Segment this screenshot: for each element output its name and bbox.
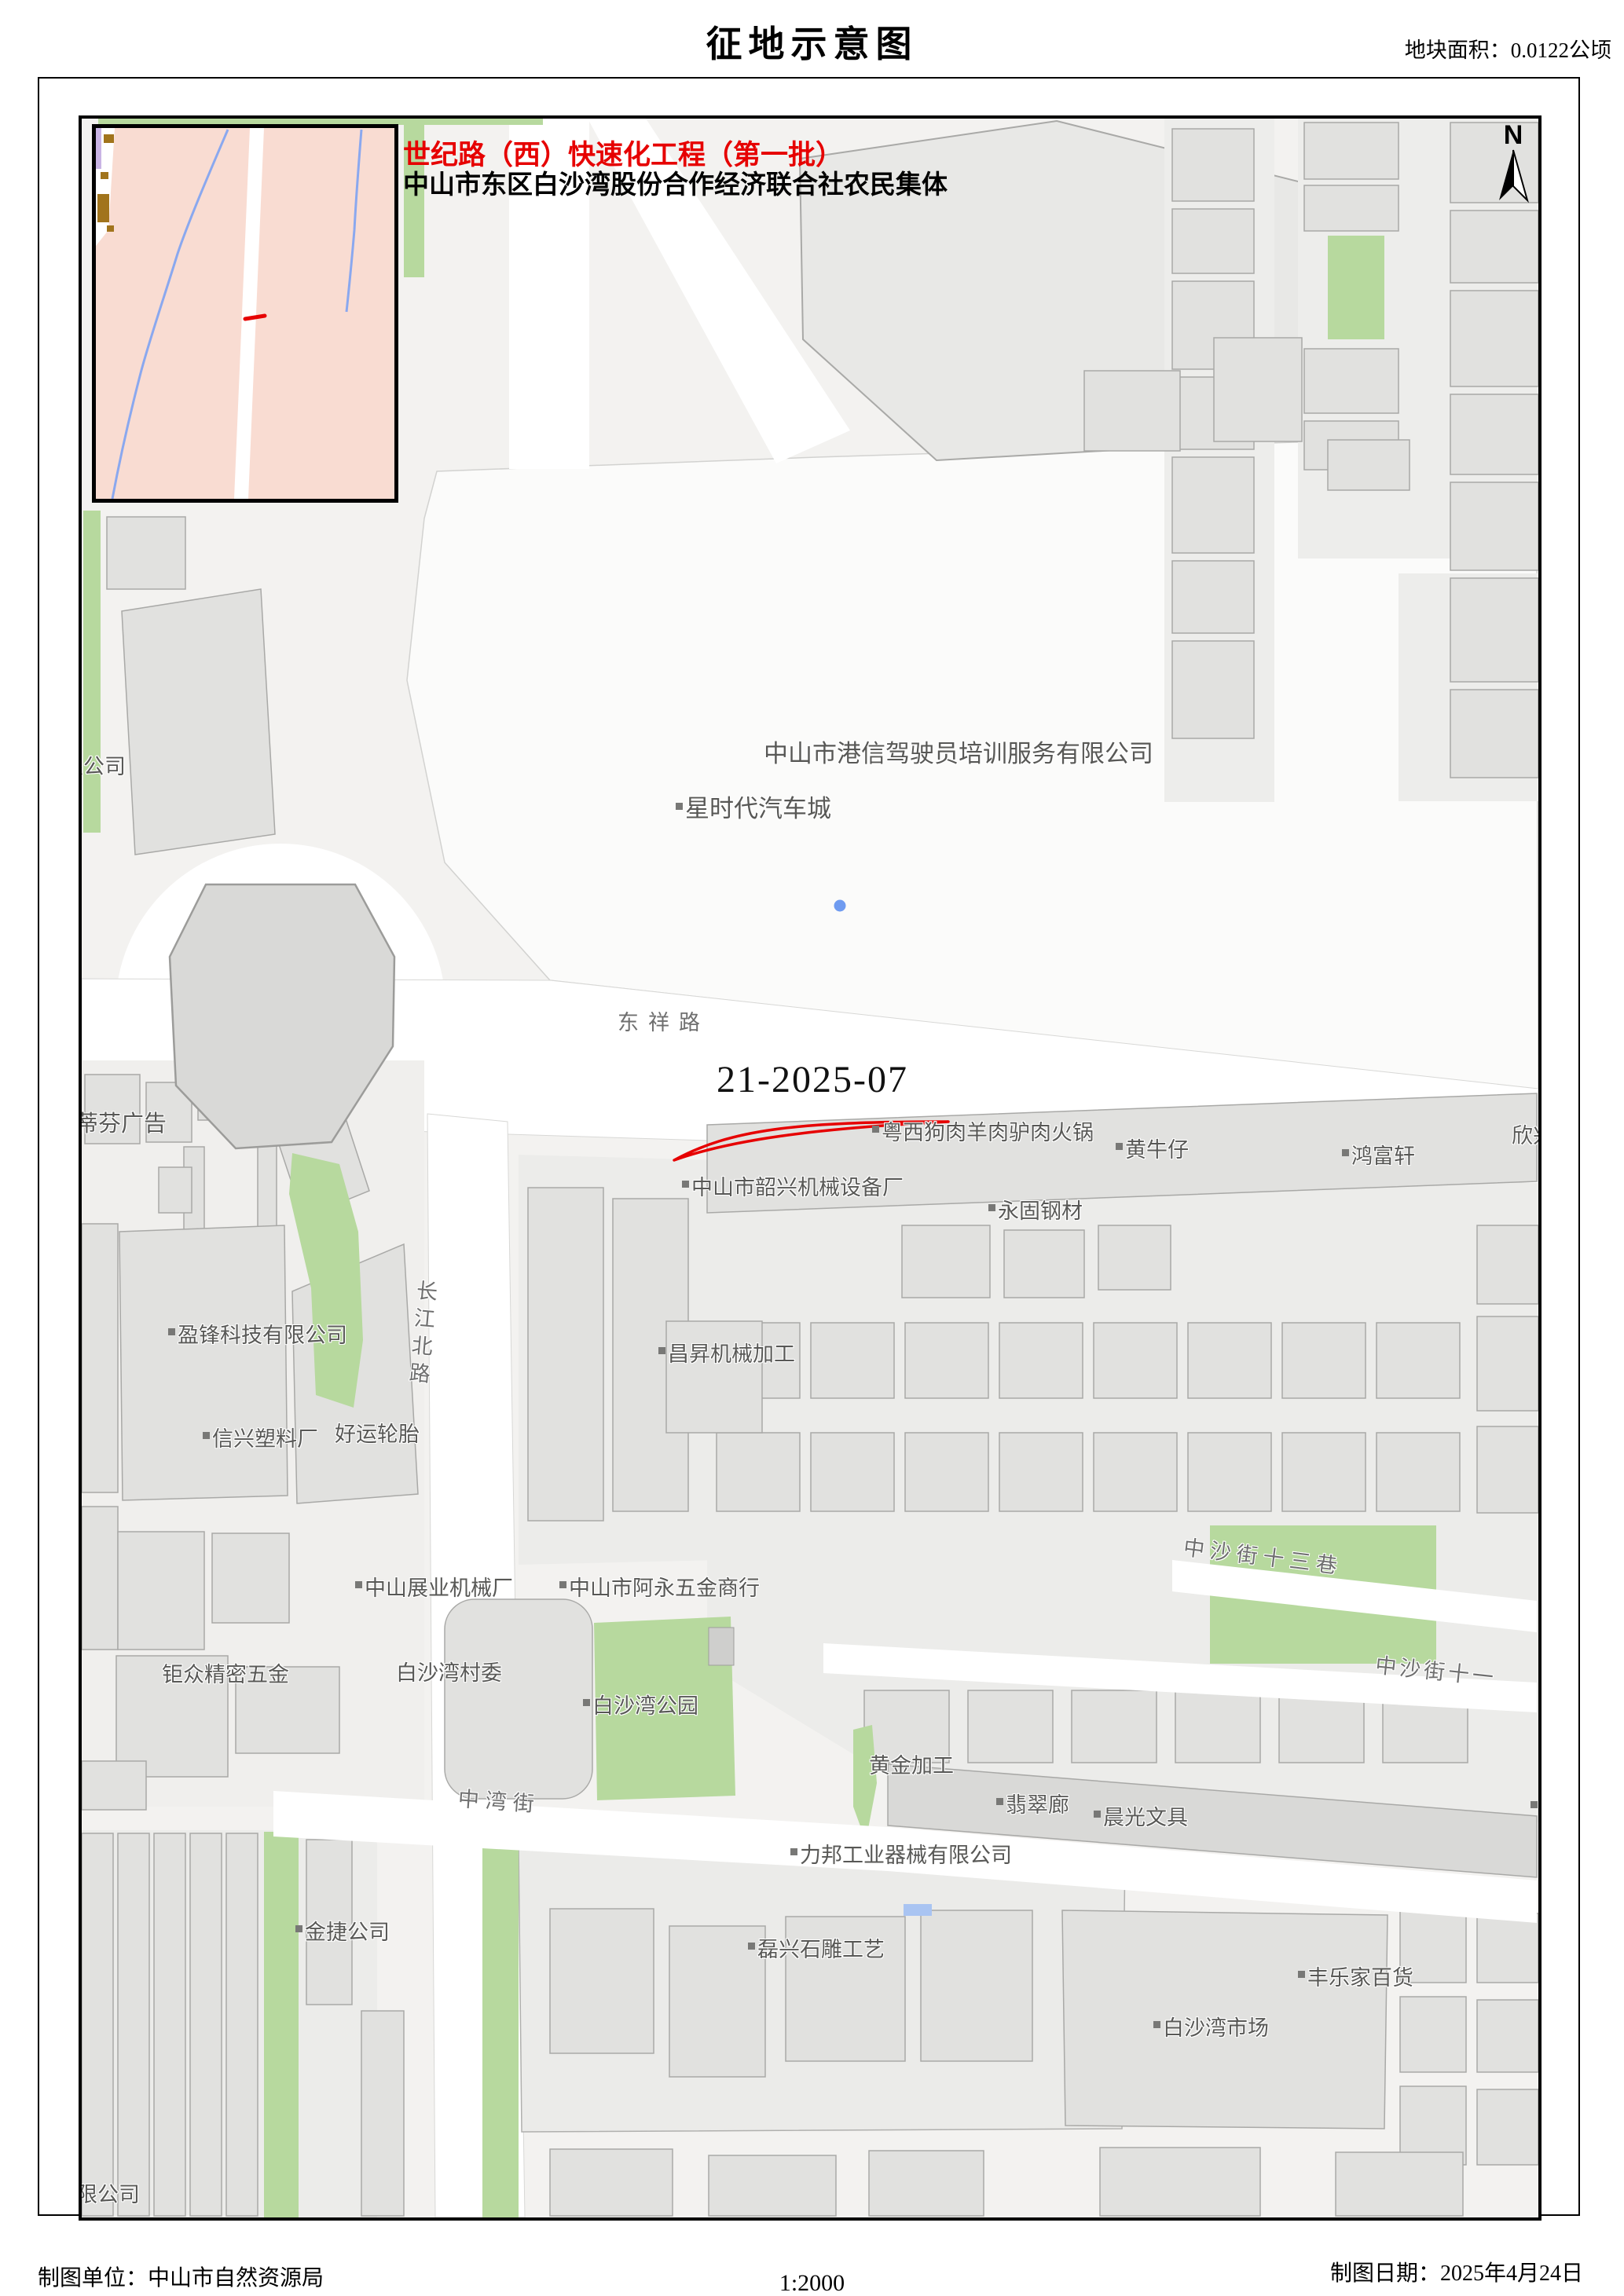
map-label-text: 中沙街十三巷 [1182, 1536, 1344, 1579]
map-date: 制图日期：2025年4月24日 [1330, 2256, 1583, 2287]
map-label: 有限公司 [79, 2184, 140, 2206]
map-label: 中山展业机械厂 [355, 1577, 513, 1599]
poi-marker-icon [168, 1328, 175, 1335]
map-label-text: 昌昇机械加工 [668, 1342, 795, 1366]
road-label: 中沙街十一 [1374, 1654, 1498, 1689]
map-label: 星时代汽车城 [676, 796, 831, 822]
poi-marker-icon [1342, 1149, 1349, 1156]
land-acquisition-map-page: 征地示意图 地块面积：0.0122公顷 [0, 0, 1624, 2296]
road-label: 东祥路 [618, 1012, 709, 1034]
map-label: 白沙湾市场 [1153, 2017, 1269, 2039]
map-label-text: 中山市港信驾驶员培训服务有限公司 [764, 740, 1153, 767]
poi-marker-icon [295, 1925, 302, 1932]
road-label: 长江北路 [405, 1279, 437, 1390]
map-label: 白沙湾村委 [396, 1662, 502, 1684]
map-label-text: 信兴塑料厂 [212, 1427, 318, 1451]
map-frame: 有限公司中山市港信驾驶员培训服务有限公司星时代汽车城东祥路蒂芬广告粤西狗肉羊肉驴… [79, 115, 1542, 2221]
map-label-text: 有限公司 [79, 2183, 140, 2206]
map-label: 中山市韶兴机械设备厂 [682, 1177, 904, 1199]
map-label-text: 鸿富轩 [1351, 1144, 1415, 1168]
map-label-text: 晨光文具 [1103, 1806, 1188, 1829]
parcel-id-label: 21-2025-07 [717, 1058, 908, 1101]
map-label: 好运轮胎 [335, 1423, 420, 1445]
map-label: 粤西狗肉羊肉驴肉火锅 [872, 1122, 1094, 1144]
map-label-text: 星时代汽车城 [685, 795, 831, 822]
inset-canvas [96, 128, 394, 499]
map-label: 信兴塑料厂 [203, 1428, 318, 1450]
poi-marker-icon [1116, 1143, 1123, 1150]
map-label-text: 粤西狗肉羊肉驴肉火锅 [882, 1121, 1094, 1144]
poi-marker-icon [1153, 2021, 1160, 2028]
map-label-text: 蒂芬广告 [79, 1111, 167, 1137]
map-label: 白沙湾公园 [583, 1695, 698, 1717]
page-title: 征地示意图 [0, 16, 1624, 68]
map-label: 金捷公司 [295, 1921, 390, 1943]
map-label: 永固钢材 [988, 1200, 1083, 1222]
map-label-text: 盈锋科技有限公司 [178, 1324, 347, 1347]
map-label-text: 翡翠廊 [1006, 1793, 1069, 1817]
map-label-text: 中山展业机械厂 [365, 1576, 513, 1600]
map-label: 中山市港信驾驶员培训服务有限公司 [764, 742, 1153, 767]
north-label: N [1491, 122, 1535, 148]
map-label-text: 钜众精密五金 [162, 1663, 289, 1686]
poi-marker-icon [996, 1798, 1003, 1805]
map-label: 鸿富轩 [1342, 1145, 1415, 1167]
map-label: 晨光文具 [1094, 1807, 1188, 1829]
map-label: 黄金加工 [869, 1755, 954, 1777]
poi-marker-icon [790, 1848, 797, 1855]
map-label: 中山市阿永五金商行 [559, 1577, 760, 1599]
map-label: 力邦工业器械有限公司 [790, 1844, 1012, 1866]
map-label-text: 有限公司 [79, 755, 126, 778]
map-label-text: 好运轮胎 [335, 1423, 420, 1446]
road-label: 中沙街十三巷 [1182, 1536, 1344, 1578]
north-arrow: N [1491, 122, 1535, 207]
map-label: 钜众精密五金 [162, 1664, 289, 1686]
poi-marker-icon [748, 1943, 755, 1950]
map-label: 翡翠廊 [996, 1794, 1069, 1816]
poi-marker-icon [583, 1699, 590, 1706]
map-label: 欣兴 [1512, 1125, 1542, 1147]
poi-marker-icon [676, 803, 683, 810]
map-label-text: 黄 [1540, 1796, 1542, 1820]
poi-marker-icon [1094, 1811, 1101, 1818]
plot-area-note: 地块面积：0.0122公顷 [1405, 33, 1611, 64]
map-label: 有限公司 [79, 756, 126, 778]
map-label-text: 白沙湾公园 [592, 1694, 698, 1718]
map-label-text: 中湾街 [457, 1787, 541, 1816]
map-label: 黄 [1531, 1797, 1542, 1819]
map-label-text: 丰乐家百货 [1307, 1966, 1413, 1990]
map-label-text: 磊兴石雕工艺 [757, 1938, 885, 1961]
map-label-text: 永固钢材 [998, 1199, 1083, 1223]
poi-marker-icon [355, 1581, 362, 1588]
map-label-text: 欣兴 [1512, 1124, 1542, 1148]
map-label-text: 中山市阿永五金商行 [569, 1576, 760, 1600]
map-label-text: 中山市韶兴机械设备厂 [691, 1176, 904, 1199]
poi-marker-icon [658, 1347, 665, 1354]
map-label-text: 黄金加工 [869, 1754, 954, 1778]
map-label: 黄牛仔 [1116, 1139, 1189, 1161]
map-label: 蒂芬广告 [79, 1112, 167, 1136]
location-inset-map [92, 124, 398, 503]
map-label: 丰乐家百货 [1298, 1967, 1413, 1989]
poi-marker-icon [1531, 1801, 1538, 1808]
map-label-text: 力邦工业器械有限公司 [800, 1844, 1012, 1867]
map-label: 磊兴石雕工艺 [748, 1939, 885, 1961]
map-label-text: 白沙湾市场 [1163, 2016, 1269, 2040]
map-label-text: 长江北路 [405, 1279, 438, 1390]
poi-marker-icon [988, 1204, 995, 1211]
map-label-text: 黄牛仔 [1125, 1138, 1189, 1162]
poi-marker-icon [1298, 1971, 1305, 1978]
land-owner-collective: 中山市东区白沙湾股份合作经济联合社农民集体 [403, 163, 948, 201]
poi-marker-icon [682, 1181, 689, 1188]
map-label-text: 白沙湾村委 [396, 1661, 502, 1685]
map-label: 盈锋科技有限公司 [168, 1324, 347, 1346]
poi-marker-icon [872, 1126, 879, 1133]
map-label-text: 东祥路 [618, 1011, 709, 1034]
poi-marker-icon [559, 1581, 566, 1588]
north-arrow-icon [1496, 148, 1531, 203]
map-label-text: 金捷公司 [305, 1921, 390, 1944]
map-label: 昌昇机械加工 [658, 1343, 795, 1365]
map-label-text: 中沙街十一 [1374, 1653, 1498, 1690]
poi-marker-icon [203, 1432, 210, 1439]
road-label: 中湾街 [457, 1788, 541, 1816]
